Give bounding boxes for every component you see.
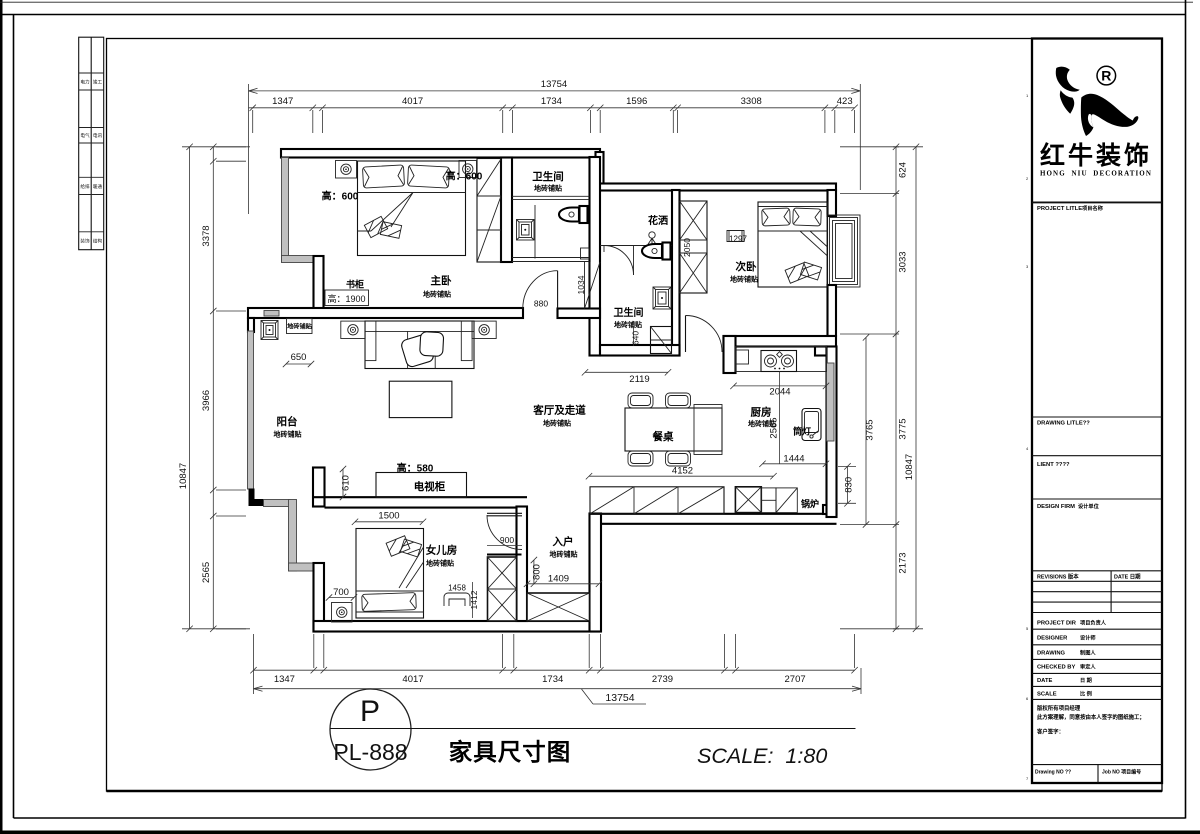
svg-text:3033: 3033 [898, 251, 909, 272]
svg-text:DATE 日期: DATE 日期 [1114, 573, 1141, 581]
svg-text:项目负责人: 项目负责人 [1080, 619, 1107, 627]
svg-text:1500: 1500 [378, 511, 399, 522]
svg-text:610: 610 [341, 475, 352, 491]
svg-text:1734: 1734 [542, 674, 563, 685]
svg-text:1734: 1734 [541, 96, 562, 107]
svg-text:4152: 4152 [672, 466, 693, 477]
svg-text:次卧: 次卧 [736, 260, 757, 273]
svg-text:DESIGN FIRM: DESIGN FIRM [1037, 504, 1075, 510]
svg-text:SCALE: SCALE [1037, 692, 1057, 698]
svg-text:暖通: 暖通 [93, 183, 103, 190]
svg-text:Drawing NO ??: Drawing NO ?? [1035, 770, 1071, 776]
svg-text:客户签字：: 客户签字： [1037, 728, 1064, 736]
svg-text:800: 800 [532, 564, 543, 580]
svg-text:日 期: 日 期 [1080, 676, 1092, 684]
svg-text:DESIGNER: DESIGNER [1037, 636, 1068, 642]
svg-text:4017: 4017 [402, 96, 423, 107]
svg-text:P: P [360, 695, 380, 728]
svg-text:CHECKED BY: CHECKED BY [1037, 665, 1075, 671]
svg-text:830: 830 [844, 477, 855, 493]
svg-text:880: 880 [534, 299, 548, 309]
svg-text:高：1900: 高：1900 [327, 293, 365, 304]
svg-text:设计师: 设计师 [1080, 634, 1096, 642]
svg-text:设计单位: 设计单位 [1078, 502, 1100, 510]
svg-text:2739: 2739 [652, 674, 673, 685]
svg-text:餐桌: 餐桌 [652, 430, 674, 443]
svg-text:筒灯: 筒灯 [793, 426, 811, 437]
svg-text:地砖铺贴: 地砖铺贴 [730, 275, 758, 284]
svg-text:2707: 2707 [785, 674, 806, 685]
svg-text:3308: 3308 [741, 96, 762, 107]
svg-text:DRAWING LITLE??: DRAWING LITLE?? [1037, 421, 1090, 427]
svg-text:红牛装饰: 红牛装饰 [1040, 141, 1152, 170]
svg-text:高：600: 高：600 [446, 170, 483, 183]
svg-text:650: 650 [291, 352, 307, 363]
svg-text:Job NO 项目编号: Job NO 项目编号 [1102, 769, 1141, 776]
svg-text:此方案理解，同意按由本人签字的图纸施工；: 此方案理解，同意按由本人签字的图纸施工； [1037, 713, 1145, 721]
svg-text:版权所有项目经理: 版权所有项目经理 [1036, 704, 1081, 712]
svg-text:LIENT ????: LIENT ???? [1037, 462, 1070, 468]
svg-text:1409: 1409 [548, 574, 569, 585]
svg-text:2119: 2119 [629, 374, 649, 385]
svg-text:入户: 入户 [553, 535, 574, 548]
svg-text:电讯: 电讯 [93, 132, 103, 139]
svg-text:DRAWING: DRAWING [1037, 651, 1066, 657]
svg-text:1412: 1412 [469, 590, 479, 609]
svg-text:卫生间: 卫生间 [532, 170, 564, 183]
svg-text:1347: 1347 [274, 674, 295, 685]
svg-text:2565: 2565 [769, 417, 780, 438]
svg-text:PROJECT DIR: PROJECT DIR [1037, 621, 1077, 627]
svg-text:高：600: 高：600 [322, 190, 359, 203]
svg-text:13754: 13754 [541, 79, 567, 90]
svg-text:1458: 1458 [448, 584, 466, 593]
svg-text:624: 624 [898, 162, 909, 178]
svg-text:厨房: 厨房 [751, 406, 772, 419]
svg-text:640: 640 [631, 331, 641, 345]
svg-text:家具尺寸图: 家具尺寸图 [449, 738, 572, 765]
svg-text:装饰: 装饰 [80, 238, 90, 245]
svg-text:1297: 1297 [729, 235, 747, 244]
svg-text:电视柜: 电视柜 [414, 480, 446, 493]
svg-text:电力: 电力 [80, 79, 90, 86]
svg-text:2565: 2565 [201, 562, 212, 583]
svg-text:制图人: 制图人 [1080, 649, 1096, 657]
svg-text:SCALE: 1:80: SCALE: 1:80 [697, 744, 827, 768]
svg-text:给排: 给排 [80, 183, 90, 190]
svg-text:高：580: 高：580 [397, 462, 434, 475]
svg-text:10847: 10847 [178, 463, 189, 489]
svg-text:3378: 3378 [201, 225, 212, 246]
svg-text:R: R [1101, 68, 1111, 84]
svg-text:3966: 3966 [201, 390, 212, 411]
svg-text:3765: 3765 [865, 419, 876, 440]
svg-text:电气: 电气 [80, 132, 90, 138]
svg-text:地砖铺贴: 地砖铺贴 [550, 550, 578, 559]
svg-text:地砖铺贴: 地砖铺贴 [614, 320, 642, 329]
svg-text:900: 900 [500, 535, 514, 545]
svg-text:REVISIONS 版本: REVISIONS 版本 [1037, 573, 1079, 581]
svg-text:2044: 2044 [769, 387, 790, 398]
svg-text:竣工: 竣工 [93, 79, 103, 86]
svg-text:423: 423 [837, 96, 853, 107]
svg-text:地砖铺贴: 地砖铺贴 [543, 419, 571, 428]
svg-text:DATE: DATE [1037, 678, 1052, 684]
svg-text:审定人: 审定人 [1080, 663, 1096, 671]
svg-text:主卧: 主卧 [431, 274, 452, 287]
svg-text:比 例: 比 例 [1080, 690, 1092, 698]
svg-text:PL-888: PL-888 [333, 739, 407, 765]
svg-text:1596: 1596 [626, 96, 647, 107]
svg-text:地砖铺贴: 地砖铺贴 [426, 559, 454, 568]
svg-text:1347: 1347 [272, 96, 293, 107]
svg-text:1034: 1034 [576, 275, 586, 294]
svg-text:地砖铺贴: 地砖铺贴 [534, 184, 562, 193]
svg-text:1444: 1444 [783, 454, 804, 465]
svg-text:HONG NIU DECORATION: HONG NIU DECORATION [1040, 170, 1152, 178]
svg-text:3775: 3775 [898, 418, 909, 439]
svg-text:PROJECT LITLE: PROJECT LITLE [1037, 206, 1082, 212]
svg-text:2050: 2050 [682, 238, 692, 257]
svg-text:13754: 13754 [605, 692, 634, 704]
svg-text:花洒: 花洒 [648, 214, 668, 227]
svg-text:2173: 2173 [898, 552, 909, 573]
svg-text:女儿房: 女儿房 [426, 544, 458, 557]
svg-text:700: 700 [333, 587, 349, 598]
svg-text:4017: 4017 [402, 674, 423, 685]
svg-text:书柜: 书柜 [346, 279, 364, 290]
svg-text:锅炉: 锅炉 [800, 498, 819, 509]
svg-text:客厅及走道: 客厅及走道 [532, 404, 586, 417]
svg-text:结构: 结构 [93, 238, 103, 245]
svg-text:阳台: 阳台 [277, 415, 298, 428]
svg-text:10847: 10847 [904, 454, 915, 480]
svg-text:地砖铺贴: 地砖铺贴 [287, 323, 313, 331]
svg-text:地砖铺贴: 地砖铺贴 [274, 430, 302, 439]
svg-text:地砖铺贴: 地砖铺贴 [423, 290, 451, 299]
svg-text:卫生间: 卫生间 [614, 306, 644, 319]
svg-text:项目名称: 项目名称 [1082, 204, 1104, 212]
